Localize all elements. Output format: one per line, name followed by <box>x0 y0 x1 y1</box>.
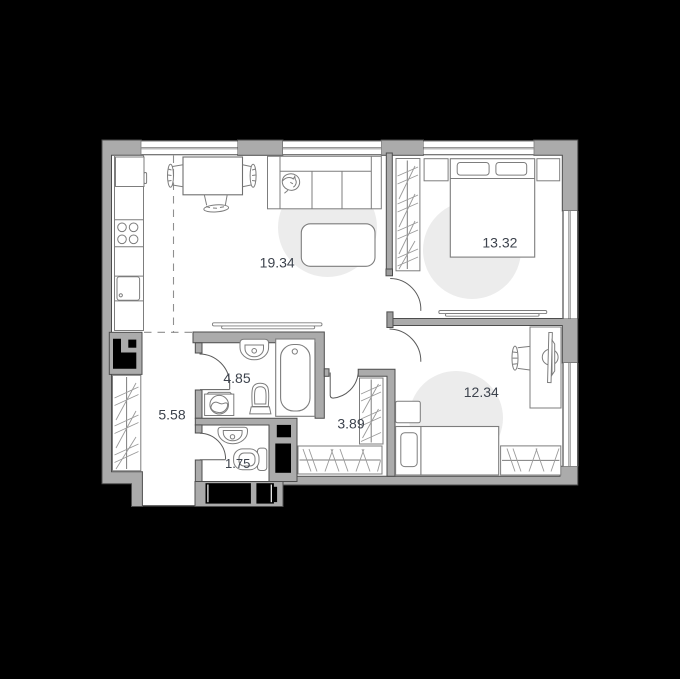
svg-text:5.58: 5.58 <box>158 406 185 422</box>
svg-text:4.85: 4.85 <box>223 370 250 386</box>
svg-text:3.89: 3.89 <box>337 416 364 432</box>
svg-text:13.32: 13.32 <box>482 234 517 250</box>
svg-text:1.75: 1.75 <box>225 456 250 471</box>
svg-text:19.34: 19.34 <box>260 255 295 271</box>
svg-text:12.34: 12.34 <box>464 384 499 400</box>
